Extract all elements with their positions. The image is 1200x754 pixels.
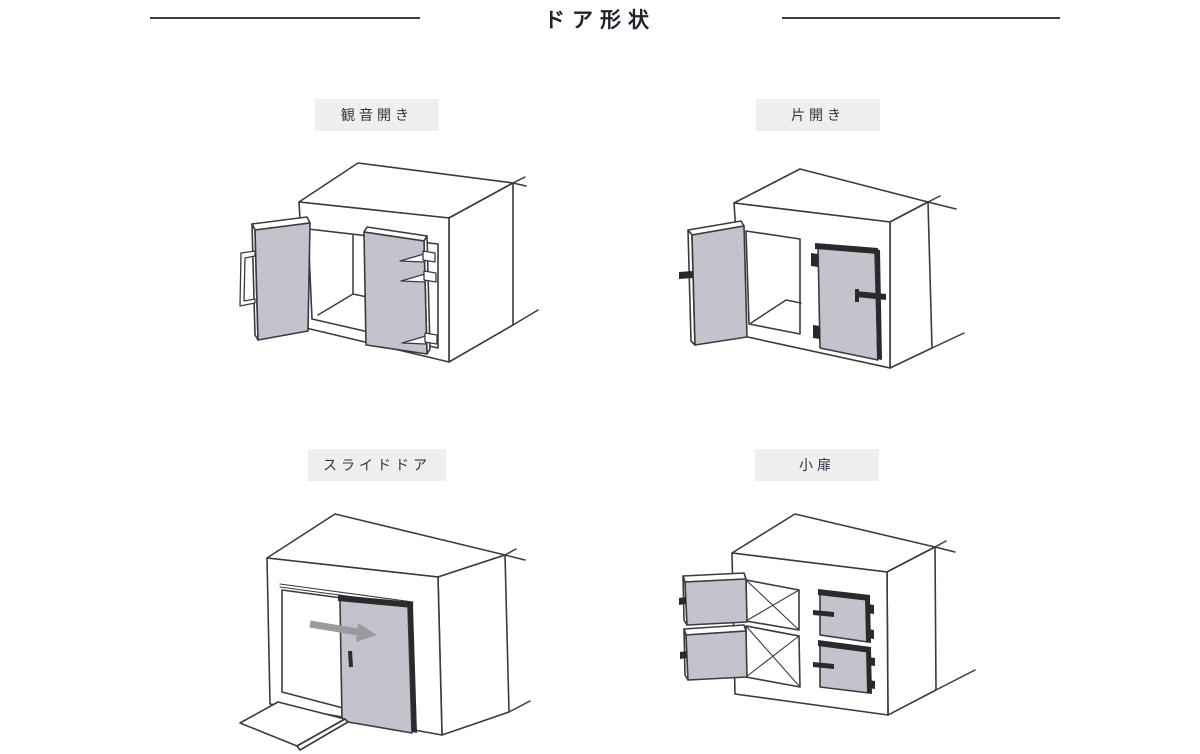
label-sliding-door: スライドドア [308, 449, 446, 481]
sliding-door-illustration [220, 500, 540, 754]
label-small-door: 小扉 [755, 449, 879, 481]
small-door-illustration [650, 495, 980, 754]
page-title: ドア形状 [544, 4, 656, 34]
door-shape-figure: ドア形状 観音開き 片開き スライドドア 小扉 [0, 0, 1200, 754]
title-rule-right [782, 17, 1060, 19]
door-handle-knob-icon [679, 271, 693, 279]
label-double-door: 観音開き [315, 99, 439, 131]
single-door-illustration [660, 160, 980, 395]
label-single-door: 片開き [756, 99, 880, 131]
title-rule-left [150, 17, 420, 19]
double-door-illustration [222, 155, 542, 385]
